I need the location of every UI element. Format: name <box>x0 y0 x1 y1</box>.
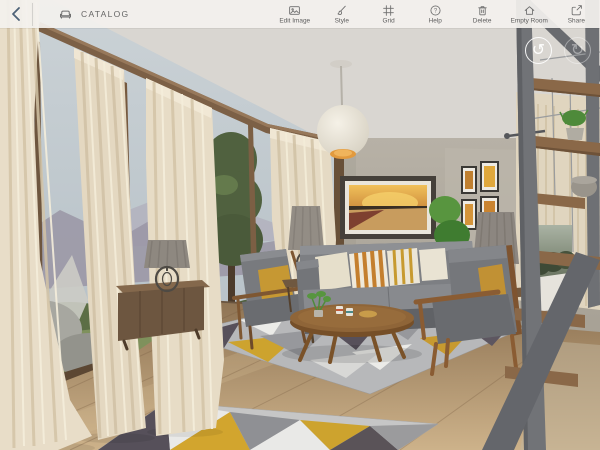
tool-label: Help <box>429 18 442 24</box>
image-icon <box>288 4 301 17</box>
share-box-icon <box>570 4 583 17</box>
help-button[interactable]: ? Help <box>412 0 459 29</box>
stair-bowl[interactable] <box>571 176 597 197</box>
paintbrush-icon <box>335 4 348 17</box>
trash-icon <box>476 4 489 17</box>
tool-label: Edit Image <box>279 18 310 24</box>
tool-label: Empty Room <box>511 18 548 24</box>
undo-button[interactable]: ↺ <box>525 37 552 64</box>
toolbar-divider <box>32 3 33 26</box>
tool-label: Style <box>334 18 348 24</box>
chevron-left-icon <box>10 6 22 22</box>
wall-art-painting[interactable] <box>340 176 436 239</box>
tool-label: Grid <box>382 18 394 24</box>
empty-room-button[interactable]: Empty Room <box>506 0 553 29</box>
redo-icon: ↻ <box>571 43 584 59</box>
edit-image-button[interactable]: Edit Image <box>271 0 318 29</box>
toolbar: CATALOG Edit Image Style Grid ? Help Del… <box>0 0 600 28</box>
house-icon <box>523 4 536 17</box>
design-canvas[interactable] <box>0 0 600 450</box>
style-button[interactable]: Style <box>318 0 365 29</box>
svg-text:?: ? <box>434 9 438 15</box>
redo-button[interactable]: ↻ <box>564 37 591 64</box>
grid-button[interactable]: Grid <box>365 0 412 29</box>
undo-icon: ↺ <box>532 43 545 59</box>
back-button[interactable] <box>0 0 32 28</box>
delete-button[interactable]: Delete <box>459 0 506 29</box>
sofa-icon <box>58 7 73 22</box>
tool-label: Delete <box>473 18 492 24</box>
catalog-label: CATALOG <box>81 9 129 19</box>
share-button[interactable]: Share <box>553 0 600 29</box>
question-circle-icon: ? <box>429 4 442 17</box>
catalog-button[interactable]: CATALOG <box>58 7 129 22</box>
grid-frame-icon <box>382 4 395 17</box>
tool-label: Share <box>568 18 585 24</box>
